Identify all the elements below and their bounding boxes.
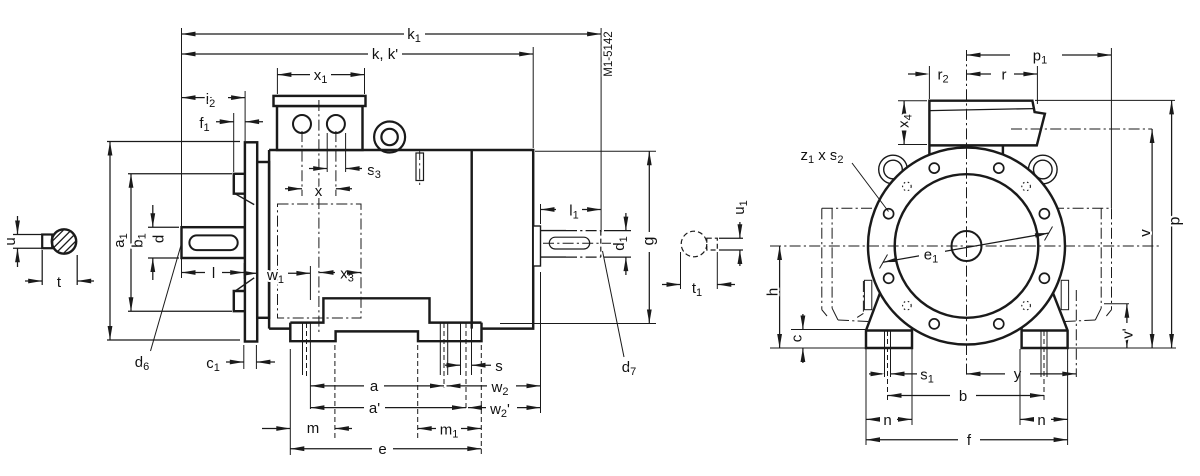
svg-text:u: u bbox=[2, 237, 19, 245]
svg-text:v: v bbox=[1137, 229, 1154, 237]
svg-text:x: x bbox=[315, 183, 323, 200]
svg-text:a': a' bbox=[369, 400, 380, 417]
svg-text:l: l bbox=[212, 265, 215, 282]
svg-text:v': v' bbox=[1120, 328, 1137, 339]
svg-text:g: g bbox=[641, 237, 658, 246]
svg-text:c: c bbox=[789, 334, 806, 342]
svg-text:k, k': k, k' bbox=[372, 46, 398, 63]
svg-text:y: y bbox=[1014, 366, 1022, 383]
svg-text:b: b bbox=[959, 388, 967, 405]
svg-text:p: p bbox=[1167, 216, 1184, 225]
svg-text:d: d bbox=[151, 235, 168, 243]
svg-text:h: h bbox=[765, 288, 782, 296]
svg-text:w2​': w2​' bbox=[489, 401, 510, 420]
svg-text:a: a bbox=[370, 378, 379, 395]
svg-text:z1​ x s2​: z1​ x s2​ bbox=[800, 147, 843, 166]
svg-text:n: n bbox=[883, 412, 891, 429]
svg-text:e: e bbox=[378, 441, 386, 458]
svg-text:n: n bbox=[1037, 412, 1045, 429]
svg-text:M1-5142: M1-5142 bbox=[603, 31, 615, 76]
svg-text:s: s bbox=[495, 358, 503, 375]
svg-text:r: r bbox=[1002, 67, 1007, 84]
svg-text:m: m bbox=[307, 420, 320, 437]
